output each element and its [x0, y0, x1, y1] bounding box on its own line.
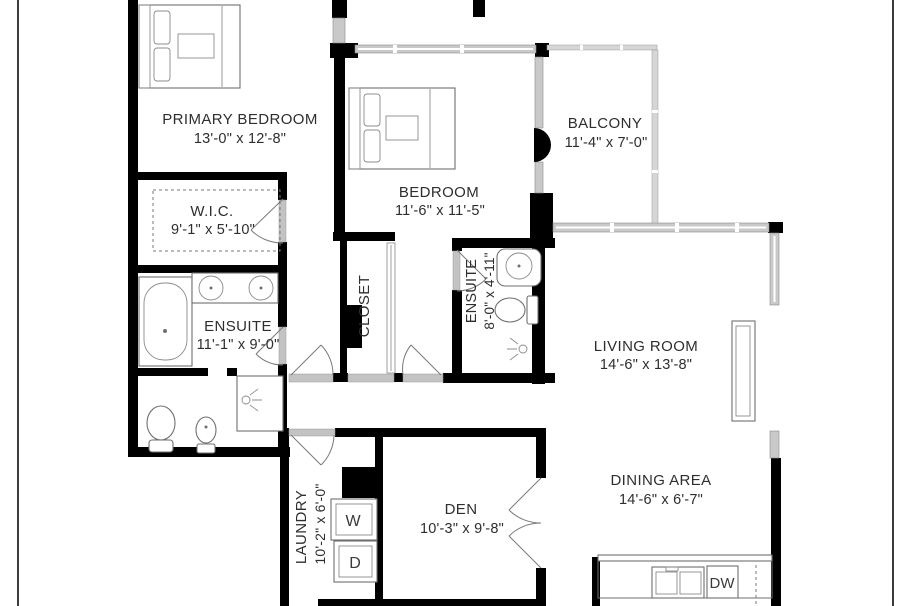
laundry-dims: 10'-2" x 6'-0"	[312, 483, 328, 564]
primary-bedroom-label: PRIMARY BEDROOM	[162, 111, 317, 128]
balcony-dims: 11'-4" x 7'-0"	[565, 135, 648, 151]
toilet-icon	[147, 406, 175, 452]
bedroom-dims: 11'-6" x 11'-5"	[395, 203, 485, 219]
sink-icon	[497, 249, 541, 286]
bedroom-label: BEDROOM	[399, 184, 479, 201]
shower-icon	[237, 376, 283, 431]
dryer-label: D	[349, 555, 361, 572]
window	[333, 18, 345, 43]
fireplace-icon	[732, 321, 755, 421]
ensuite2-label: ENSUITE	[464, 259, 480, 323]
dishwasher-label: DW	[710, 575, 736, 592]
primary-ensuite-label: ENSUITE	[204, 318, 272, 335]
living-room-label: LIVING ROOM	[594, 338, 698, 355]
bed-icon	[139, 5, 240, 88]
bathtub-icon	[139, 277, 192, 366]
wic-dims: 9'-1" x 5'-10"	[171, 222, 255, 238]
window	[535, 57, 543, 128]
wic-label: W.I.C.	[190, 203, 233, 220]
closet-label: CLOSET	[356, 275, 373, 337]
primary-bedroom-dims: 13'-0" x 12'-8"	[194, 131, 286, 147]
living-room-dims: 14'-6" x 13'-8"	[600, 357, 692, 373]
fireplace-label: FP	[756, 363, 777, 380]
window	[770, 431, 779, 458]
washer-label: W	[345, 513, 361, 530]
toilet-icon	[495, 296, 538, 324]
dining-area-label: DINING AREA	[610, 472, 711, 489]
kitchen-sink-icon	[652, 567, 704, 598]
vanity-sinks-icon	[192, 273, 278, 303]
bidet-icon	[196, 417, 216, 453]
balcony-label: BALCONY	[568, 115, 643, 132]
laundry-label: LAUNDRY	[293, 490, 310, 564]
den-dims: 10'-3" x 9'-8"	[420, 521, 504, 537]
sliding-door	[387, 243, 395, 373]
dining-area-dims: 14'-6" x 6'-7"	[619, 492, 703, 508]
floor-plan: PRIMARY BEDROOM 13'-0" x 12'-8" W.I.C. 9…	[0, 0, 910, 606]
bed-icon	[349, 88, 455, 169]
ensuite2-dims: 8'-0" x 4'-11"	[482, 252, 497, 329]
primary-ensuite-dims: 11'-1" x 9'-0"	[197, 337, 280, 353]
window	[535, 162, 543, 193]
den-label: DEN	[445, 501, 478, 518]
